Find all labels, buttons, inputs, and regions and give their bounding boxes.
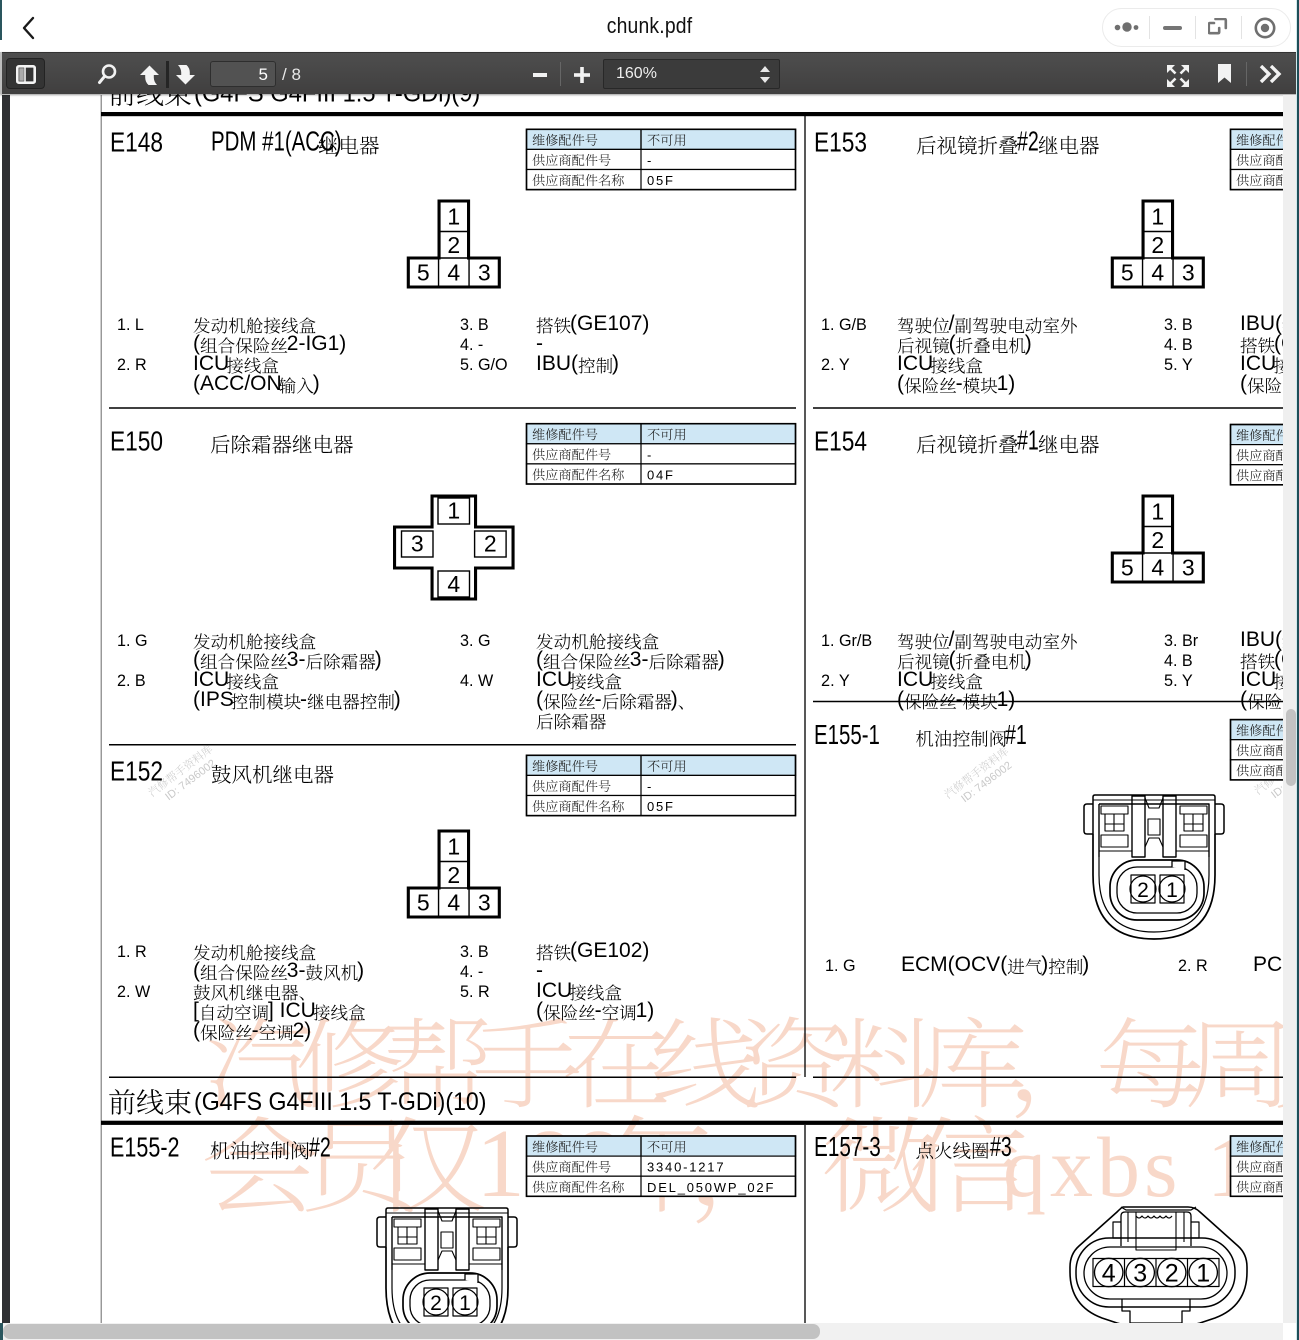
svg-text:PDM #1(ACC): PDM #1(ACC) <box>211 126 342 157</box>
svg-text:3: 3 <box>478 260 491 286</box>
svg-text:4: 4 <box>447 571 460 597</box>
svg-text:-: - <box>647 779 653 794</box>
svg-text:2. W: 2. W <box>117 982 150 1001</box>
svg-text:2. B: 2. B <box>117 671 146 690</box>
svg-text:3: 3 <box>411 531 424 557</box>
svg-text:(: ( <box>193 959 200 982</box>
svg-text:2: 2 <box>484 531 497 557</box>
svg-text:E155-2: E155-2 <box>110 1132 180 1163</box>
svg-text:E155-1: E155-1 <box>814 719 880 750</box>
svg-text:): ) <box>1082 953 1089 976</box>
svg-text:): ) <box>375 648 382 671</box>
svg-text:4. B: 4. B <box>1164 651 1193 670</box>
svg-text:DEL_050WP_02F: DEL_050WP_02F <box>647 1180 775 1195</box>
svg-text:#1: #1 <box>1005 719 1027 750</box>
svg-text:4: 4 <box>447 890 460 916</box>
svg-text:(: ( <box>193 1019 200 1042</box>
svg-text:2. Y: 2. Y <box>821 671 850 690</box>
svg-text:): ) <box>671 688 678 711</box>
svg-text:#1: #1 <box>1017 425 1039 456</box>
svg-text:5. Y: 5. Y <box>1164 671 1193 690</box>
svg-text:1. L: 1. L <box>117 315 144 334</box>
svg-text:1: 1 <box>447 834 460 860</box>
svg-text:5. R: 5. R <box>460 982 490 1001</box>
svg-text:4: 4 <box>1151 555 1164 581</box>
svg-text:E148: E148 <box>110 127 163 158</box>
svg-text:(G4FS G4FIII 1.5 T-GDi)(10): (G4FS G4FIII 1.5 T-GDi)(10) <box>194 1088 487 1116</box>
svg-text:3340-1217: 3340-1217 <box>647 1160 725 1175</box>
svg-text:1. G: 1. G <box>117 631 148 650</box>
svg-text:E150: E150 <box>110 426 163 457</box>
svg-text:2): 2) <box>293 1019 312 1042</box>
svg-text:E157-3: E157-3 <box>814 1131 881 1162</box>
svg-text:-: - <box>252 1019 259 1042</box>
svg-text:1): 1) <box>997 688 1016 711</box>
svg-text:): ) <box>357 959 364 982</box>
svg-text:3-: 3- <box>287 959 306 982</box>
svg-text:ECM(OCV(: ECM(OCV( <box>901 953 1007 976</box>
svg-text:): ) <box>612 352 619 375</box>
svg-text:(GE102): (GE102) <box>570 939 649 962</box>
svg-text:(: ( <box>897 688 904 711</box>
svg-text:04F: 04F <box>647 468 675 483</box>
svg-text:1. R: 1. R <box>117 942 147 961</box>
svg-text:(GE107): (GE107) <box>570 312 649 335</box>
svg-text:#2: #2 <box>1017 126 1039 157</box>
svg-text:IBU(: IBU( <box>536 352 578 375</box>
svg-text:(: ( <box>1240 688 1247 711</box>
svg-text:3. B: 3. B <box>460 942 489 961</box>
svg-text:3. G: 3. G <box>460 631 491 650</box>
svg-text:2: 2 <box>1151 232 1164 258</box>
svg-text:2. Y: 2. Y <box>821 355 850 374</box>
svg-text:3. B: 3. B <box>1164 315 1193 334</box>
svg-text:5. G/O: 5. G/O <box>460 355 508 374</box>
svg-text:): ) <box>394 688 401 711</box>
svg-text:): ) <box>1041 953 1048 976</box>
svg-text:1: 1 <box>1151 203 1164 229</box>
svg-text:3. Br: 3. Br <box>1164 631 1198 650</box>
svg-text:-: - <box>956 688 963 711</box>
svg-text:-: - <box>647 153 653 168</box>
svg-text:5: 5 <box>1121 260 1134 286</box>
svg-text:3-: 3- <box>630 648 649 671</box>
svg-text:5. Y: 5. Y <box>1164 355 1193 374</box>
svg-text:5: 5 <box>1121 555 1134 581</box>
svg-text:1): 1) <box>636 999 655 1022</box>
svg-text:1: 1 <box>447 498 460 524</box>
svg-text:(: ( <box>1240 372 1247 395</box>
svg-text:4. -: 4. - <box>460 335 483 354</box>
svg-text:(IPS: (IPS <box>193 688 234 711</box>
svg-text:5: 5 <box>417 260 430 286</box>
svg-text:05F: 05F <box>647 173 675 188</box>
svg-text:(: ( <box>536 688 543 711</box>
svg-text:3: 3 <box>1182 555 1195 581</box>
svg-text:E154: E154 <box>814 426 867 457</box>
svg-text:(: ( <box>536 999 543 1022</box>
svg-text:): ) <box>718 648 725 671</box>
svg-text:05F: 05F <box>647 799 675 814</box>
svg-text:E153: E153 <box>814 127 867 158</box>
svg-text:#3: #3 <box>990 1131 1012 1162</box>
svg-text:1. G/B: 1. G/B <box>821 315 867 334</box>
svg-text:1. Gr/B: 1. Gr/B <box>821 631 872 650</box>
svg-text:2: 2 <box>1151 527 1164 553</box>
svg-text:): ) <box>1025 648 1032 671</box>
svg-text:3: 3 <box>1182 260 1195 286</box>
svg-text:2. R: 2. R <box>117 355 147 374</box>
svg-text:(: ( <box>949 648 956 671</box>
svg-text:-: - <box>956 372 963 395</box>
svg-text:): ) <box>1025 332 1032 355</box>
svg-text:): ) <box>313 372 320 395</box>
svg-text:4. -: 4. - <box>460 962 483 981</box>
svg-text:1: 1 <box>447 203 460 229</box>
svg-text:2: 2 <box>447 862 460 888</box>
svg-text:3: 3 <box>478 890 491 916</box>
svg-text:(: ( <box>949 332 956 355</box>
svg-text:(ACC/ON: (ACC/ON <box>193 372 282 395</box>
svg-text:-: - <box>300 688 307 711</box>
svg-text:4: 4 <box>1151 260 1164 286</box>
svg-text:-: - <box>647 447 653 462</box>
svg-text:-: - <box>595 688 602 711</box>
svg-text:E152: E152 <box>110 756 163 787</box>
svg-text:2-IG1): 2-IG1) <box>287 332 347 355</box>
svg-text:3. B: 3. B <box>460 315 489 334</box>
svg-text:-: - <box>595 999 602 1022</box>
svg-text:5: 5 <box>417 890 430 916</box>
svg-text:4. B: 4. B <box>1164 335 1193 354</box>
svg-text:1): 1) <box>997 372 1016 395</box>
svg-text:2: 2 <box>447 232 460 258</box>
svg-text:2. R: 2. R <box>1178 956 1208 975</box>
svg-text:3-: 3- <box>287 648 306 671</box>
svg-text:1: 1 <box>1151 499 1164 525</box>
svg-text:4. W: 4. W <box>460 671 493 690</box>
svg-text:4: 4 <box>447 260 460 286</box>
svg-text:1. G: 1. G <box>825 956 856 975</box>
svg-text:(: ( <box>897 372 904 395</box>
svg-text:#2: #2 <box>309 1132 331 1163</box>
